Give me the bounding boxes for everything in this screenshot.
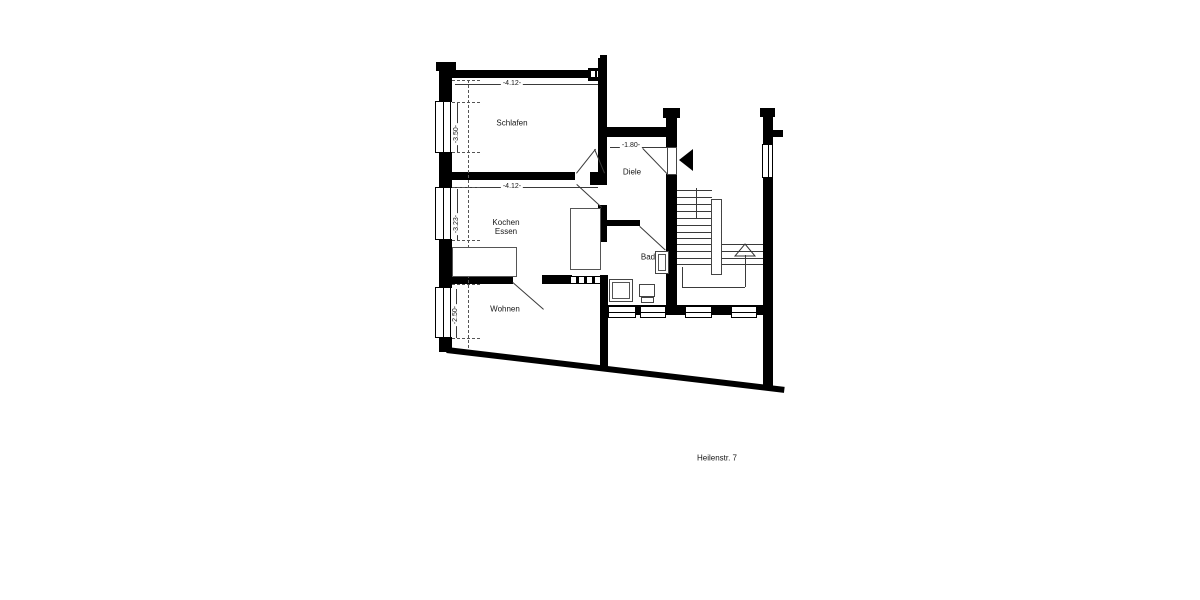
dimension-tick-2 [452,102,480,103]
flue-vent-1 [591,71,595,77]
door-swing-schlafen-a [576,149,596,174]
wall-entry-top-cap [663,108,680,118]
window-bad-bottom-2 [640,306,666,318]
stair-direction-icon [733,242,757,258]
checker-gap-4 [595,277,600,283]
stair-walk-line [696,188,697,218]
stair-landing-edge-bottom [682,287,745,288]
floor-plan-canvas: Schlafen Kochen Essen Wohnen Diele Bad H… [0,0,1200,600]
kitchen-counter [452,247,517,277]
entrance-arrow-icon [679,149,693,171]
dim-label-kochen-width: -4.12- [501,183,523,191]
dim-label-schlafen-width: -4.12- [501,80,523,88]
toilet-tank [639,284,655,297]
wall-wohnen-right [600,275,608,368]
wall-bad-top [605,220,640,226]
window-bad-bottom-1 [608,306,636,318]
built-in-cupboard [570,208,601,270]
dim-label-wohnen-depth: -2.50- [452,304,460,326]
dim-label-entry-width: -1.80- [620,142,642,150]
window-stair-bottom-1 [685,306,712,318]
room-label-kochen-essen: Kochen Essen [492,218,519,236]
window-schlafen [435,101,451,153]
wall-right-segment-2 [763,177,773,390]
window-stair-bottom-2 [731,306,757,318]
room-label-essen-line: Essen [495,227,517,236]
door-swing-entrance [642,148,668,175]
room-label-wohnen: Wohnen [490,305,520,314]
checker-gap-2 [579,277,584,283]
wall-diele-top [602,127,675,137]
window-wohnen [435,287,451,338]
toilet-bowl [641,297,654,303]
wall-kochen-wohnen [439,276,513,284]
washbasin [655,251,669,274]
wall-schlafen-top [450,70,590,78]
entrance-door-leaf [667,147,677,175]
stair-landing-edge-right [745,255,746,287]
stair-tread-3 [677,204,712,205]
wall-schlafen-bottom-corner [590,172,606,185]
address-caption: Heilenstr. 7 [697,454,737,463]
dimension-chain-vertical [468,80,469,348]
room-label-schlafen: Schlafen [496,119,527,128]
checker-gap-1 [571,277,576,283]
wall-left-segment-2 [439,152,452,188]
stair-tread-6 [677,225,712,226]
stair-tread-7 [677,232,712,233]
shower-tray [609,279,633,302]
dim-line-schlafen-width [455,84,598,85]
stair-center-stringer [711,199,722,275]
stair-landing-edge-left [682,267,683,287]
checker-gap-3 [587,277,592,283]
wall-right-tick [772,130,783,137]
dimension-tick-1 [452,80,480,81]
dimension-tick-7 [452,338,480,339]
dimension-tick-4 [452,187,480,188]
dimension-tick-3 [452,152,480,153]
wall-mid-vertical-top [598,58,607,185]
room-label-kochen-line: Kochen [492,218,519,227]
wall-bottom-diagonal [446,347,784,393]
door-swing-bad [639,226,665,250]
room-label-diele: Diele [623,168,641,177]
room-label-bad: Bad [641,253,655,262]
window-stairwell-right [762,144,773,178]
wall-entry-right-upper [666,118,677,148]
wall-entry-right-lower [666,174,677,315]
dimension-tick-6 [452,284,480,285]
dim-label-kochen-depth: -3.23- [453,213,461,235]
window-kochen [435,187,451,240]
stair-tread-2 [677,197,712,198]
stair-tread-8 [677,238,712,239]
stair-tread-4 [677,211,712,212]
wall-right-top-cap [760,108,775,117]
dimension-tick-5 [452,240,480,241]
wall-schlafen-bottom [452,172,575,180]
stair-tread-1 [677,190,712,191]
dim-label-schlafen-depth: -3.50- [453,123,461,145]
stair-tread-5 [677,218,712,219]
